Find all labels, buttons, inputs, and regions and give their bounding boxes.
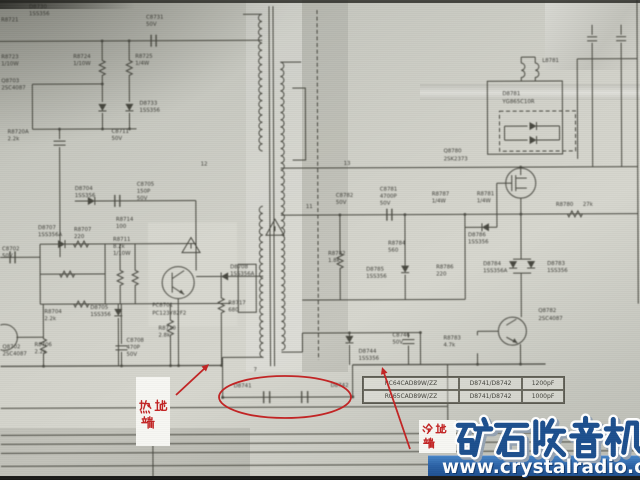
watermark-logo (0, 0, 640, 480)
photo-top-shadow (0, 0, 135, 9)
watermark-url: www.crystalradio.cn (442, 457, 640, 478)
schematic-photo: D87301SS356C873150VR8721R87231/10WQ87032… (0, 0, 640, 480)
